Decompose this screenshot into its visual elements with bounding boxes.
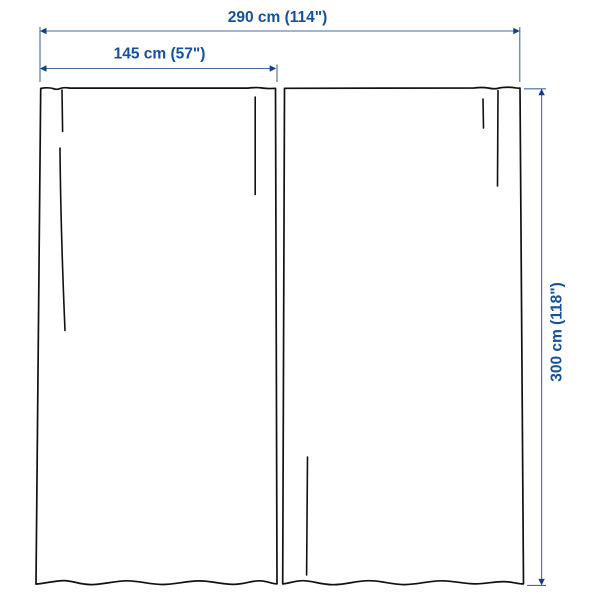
svg-text:290 cm (114"): 290 cm (114") bbox=[228, 9, 328, 26]
svg-text:300 cm (118"): 300 cm (118") bbox=[549, 282, 566, 382]
svg-text:145 cm (57"): 145 cm (57") bbox=[114, 46, 206, 63]
